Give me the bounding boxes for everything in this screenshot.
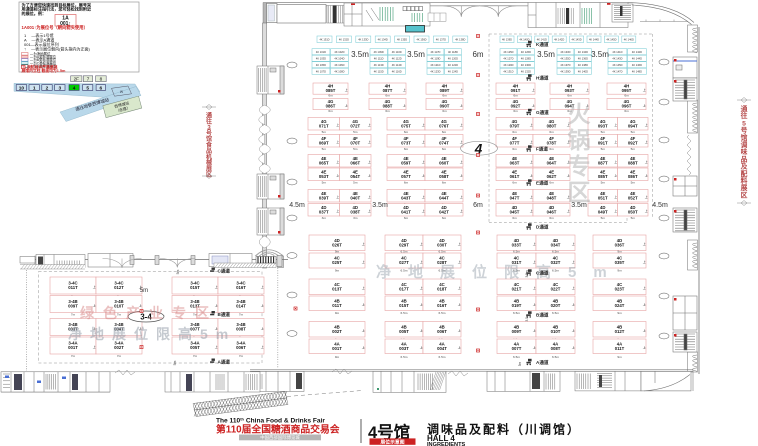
- svg-text:调: 调: [741, 140, 748, 149]
- svg-text:4K 144D: 4K 144D: [632, 56, 642, 60]
- svg-text:002T: 002T: [114, 345, 124, 350]
- svg-text:8: 8: [100, 76, 103, 81]
- svg-text:上: 上: [533, 328, 536, 333]
- svg-text:091T: 091T: [511, 88, 521, 93]
- svg-text:2F: 2F: [74, 76, 80, 81]
- svg-text:上: 上: [336, 139, 339, 144]
- svg-text:7m: 7m: [239, 354, 244, 358]
- svg-text:6m: 6m: [328, 109, 333, 113]
- svg-text:060T: 060T: [439, 160, 449, 165]
- svg-text:上: 上: [460, 139, 463, 144]
- svg-text:上: 上: [614, 139, 617, 144]
- svg-text:4K 132D: 4K 132D: [521, 69, 531, 73]
- svg-text:4K 125D: 4K 125D: [503, 50, 513, 54]
- svg-text:味: 味: [741, 147, 748, 156]
- svg-text:4K 109D: 4K 109D: [374, 50, 384, 54]
- svg-text:007T: 007T: [512, 346, 522, 351]
- svg-text:上: 上: [403, 103, 406, 108]
- svg-text:054T: 054T: [350, 174, 360, 179]
- svg-text:7m: 7m: [239, 313, 244, 317]
- svg-text:036T: 036T: [615, 242, 625, 247]
- svg-text:6m: 6m: [442, 130, 447, 134]
- svg-text:上: 上: [460, 173, 463, 178]
- svg-text:6m: 6m: [385, 94, 390, 98]
- svg-text:B通道: B通道: [218, 311, 231, 318]
- svg-text:3m: 3m: [353, 216, 358, 220]
- svg-text:023T: 023T: [615, 286, 625, 291]
- svg-text:通: 通: [206, 112, 212, 120]
- svg-text:079T: 079T: [510, 123, 520, 128]
- svg-text:4K 110D: 4K 110D: [392, 50, 402, 54]
- svg-text:3: 3: [58, 85, 61, 91]
- svg-text:041T: 041T: [401, 209, 411, 214]
- svg-text:上: 上: [368, 122, 371, 127]
- svg-text:012T: 012T: [615, 329, 625, 334]
- svg-text:001T: 001T: [332, 346, 342, 351]
- svg-text:上: 上: [645, 208, 648, 213]
- svg-text:6: 6: [99, 85, 102, 91]
- svg-text:092T: 092T: [628, 140, 638, 145]
- svg-text:上: 上: [215, 344, 218, 349]
- svg-text:4K 140D: 4K 140D: [519, 37, 529, 41]
- svg-text:上: 上: [362, 345, 365, 350]
- svg-text:5: 5: [86, 85, 89, 91]
- svg-text:上: 上: [460, 103, 463, 108]
- svg-text:C通道: C通道: [536, 270, 549, 277]
- svg-text:5m: 5m: [601, 181, 606, 185]
- svg-text:6m: 6m: [442, 147, 447, 151]
- svg-text:4K 134D: 4K 134D: [378, 37, 388, 41]
- svg-text:上: 上: [368, 208, 371, 213]
- svg-text:4K 143D: 4K 143D: [572, 37, 582, 41]
- svg-text:037T: 037T: [319, 209, 329, 214]
- svg-text:008T: 008T: [236, 327, 246, 332]
- svg-text:092T: 092T: [511, 104, 521, 109]
- svg-text:上: 上: [336, 208, 339, 213]
- svg-text:上: 上: [362, 259, 365, 264]
- svg-text:械: 械: [206, 159, 212, 167]
- svg-text:088T: 088T: [383, 104, 393, 109]
- svg-text:4K 137D: 4K 137D: [436, 37, 446, 41]
- svg-text:9m: 9m: [617, 355, 622, 359]
- svg-text:上: 上: [614, 173, 617, 178]
- svg-text:上: 上: [643, 302, 646, 307]
- svg-text:026T: 026T: [332, 242, 342, 247]
- svg-text:6m: 6m: [404, 181, 409, 185]
- svg-text:上: 上: [458, 302, 461, 307]
- svg-text:009T: 009T: [68, 304, 78, 309]
- svg-text:上: 上: [460, 208, 463, 213]
- svg-text:4K 129D: 4K 129D: [503, 63, 513, 67]
- svg-text:上: 上: [336, 173, 339, 178]
- svg-text:5: 5: [742, 120, 746, 127]
- svg-text:091T: 091T: [598, 140, 608, 145]
- svg-text:085T: 085T: [326, 88, 336, 93]
- svg-text:5m: 5m: [353, 130, 358, 134]
- svg-text:上: 上: [362, 285, 365, 290]
- svg-text:021T: 021T: [512, 286, 522, 291]
- svg-text:072T: 072T: [350, 123, 360, 128]
- svg-text:061T: 061T: [510, 174, 520, 179]
- svg-text:中国西部国际博览城: 中国西部国际博览城: [260, 434, 300, 441]
- svg-text:3.5m: 3.5m: [537, 50, 555, 59]
- svg-text:001T: 001T: [68, 345, 78, 350]
- svg-text:展馆内立柱 截面均为1.5m: 展馆内立柱 截面均为1.5m: [21, 68, 67, 73]
- svg-text:057T: 057T: [401, 174, 411, 179]
- svg-text:上: 上: [645, 122, 648, 127]
- svg-text:4K 139D: 4K 139D: [502, 37, 512, 41]
- svg-text:上: 上: [422, 122, 425, 127]
- svg-text:上: 上: [362, 302, 365, 307]
- svg-text:075T: 075T: [401, 123, 411, 128]
- svg-text:4K 145D: 4K 145D: [606, 37, 616, 41]
- svg-text:上: 上: [458, 328, 461, 333]
- svg-text:020T: 020T: [551, 303, 561, 308]
- svg-text:6.5m: 6.5m: [439, 311, 446, 315]
- svg-text:066T: 066T: [350, 160, 360, 165]
- svg-text:3.5m: 3.5m: [372, 202, 388, 209]
- svg-text:9m: 9m: [617, 311, 622, 315]
- svg-text:070T: 070T: [350, 140, 360, 145]
- svg-text:6m: 6m: [404, 216, 409, 220]
- svg-text:4K 111D: 4K 111D: [374, 56, 384, 60]
- svg-text:上: 上: [614, 194, 617, 199]
- svg-text:003T: 003T: [399, 346, 409, 351]
- svg-text:上: 上: [460, 159, 463, 164]
- svg-text:上: 上: [530, 194, 533, 199]
- svg-text:的展位。例：: 的展位。例：: [22, 10, 47, 16]
- svg-text:4K 135D: 4K 135D: [397, 37, 407, 41]
- svg-text:上: 上: [420, 241, 423, 246]
- svg-text:4K 145D: 4K 145D: [612, 63, 622, 67]
- svg-text:4K 105D: 4K 105D: [316, 63, 326, 67]
- svg-text:上: 上: [460, 87, 463, 92]
- svg-text:4K 140D: 4K 140D: [578, 69, 588, 73]
- svg-text:6m: 6m: [404, 147, 409, 151]
- svg-text:043T: 043T: [401, 195, 411, 200]
- svg-text:6m: 6m: [512, 181, 517, 185]
- svg-text:4K 144D: 4K 144D: [589, 37, 599, 41]
- svg-text:015T: 015T: [190, 285, 200, 290]
- svg-text:上: 上: [422, 208, 425, 213]
- svg-text:095T: 095T: [622, 88, 632, 93]
- svg-text:3.5m: 3.5m: [525, 314, 529, 321]
- svg-text:号: 号: [741, 126, 748, 135]
- svg-text:5m: 5m: [140, 288, 148, 294]
- svg-text:上: 上: [614, 159, 617, 164]
- svg-text:6m: 6m: [328, 94, 333, 98]
- svg-text:5m: 5m: [601, 216, 606, 220]
- svg-text:上: 上: [261, 284, 264, 289]
- svg-text:5m: 5m: [322, 130, 327, 134]
- svg-text:4K 122D: 4K 122D: [448, 63, 458, 67]
- svg-text:005T: 005T: [190, 345, 200, 350]
- svg-text:013T: 013T: [332, 286, 342, 291]
- svg-text:上: 上: [93, 284, 96, 289]
- svg-text:1: 1: [33, 85, 36, 91]
- svg-text:3.5m: 3.5m: [571, 202, 587, 209]
- svg-text:上: 上: [336, 122, 339, 127]
- svg-text:3.5m: 3.5m: [591, 50, 609, 59]
- svg-text:上: 上: [368, 173, 371, 178]
- svg-text:046T: 046T: [547, 209, 557, 214]
- svg-text:9m: 9m: [335, 269, 340, 273]
- svg-text:4K 118D: 4K 118D: [448, 50, 458, 54]
- svg-text:085T: 085T: [598, 174, 608, 179]
- svg-text:7m: 7m: [71, 313, 76, 317]
- svg-text:料: 料: [741, 176, 748, 185]
- svg-text:上: 上: [532, 87, 535, 92]
- svg-text:4K 126D: 4K 126D: [521, 50, 531, 54]
- svg-text:4K 115D: 4K 115D: [374, 69, 384, 73]
- svg-text:6m: 6m: [512, 130, 517, 134]
- svg-text:6m: 6m: [473, 202, 483, 209]
- svg-text:063T: 063T: [510, 160, 520, 165]
- svg-text:071T: 071T: [319, 123, 329, 128]
- svg-text:096T: 096T: [622, 104, 632, 109]
- svg-text:030T: 030T: [437, 242, 447, 247]
- svg-text:4K 116D: 4K 116D: [392, 69, 402, 73]
- svg-text:6.5m: 6.5m: [552, 355, 559, 359]
- svg-text:D通道: D通道: [536, 224, 549, 231]
- svg-text:4K 133D: 4K 133D: [560, 50, 570, 54]
- svg-text:C通道: C通道: [218, 268, 231, 275]
- svg-text:及: 及: [741, 163, 748, 171]
- svg-text:6.5m: 6.5m: [552, 311, 559, 315]
- svg-text:上: 上: [572, 241, 575, 246]
- svg-text:4K 117D: 4K 117D: [430, 50, 440, 54]
- svg-text:4K 141D: 4K 141D: [612, 50, 622, 54]
- svg-text:017T: 017T: [399, 286, 409, 291]
- svg-text:7m: 7m: [193, 354, 198, 358]
- svg-text:4K 143D: 4K 143D: [612, 56, 622, 60]
- svg-text:7m: 7m: [117, 354, 122, 358]
- svg-text:9m: 9m: [335, 311, 340, 315]
- svg-text:093T: 093T: [565, 88, 575, 93]
- svg-text:064T: 064T: [547, 160, 557, 165]
- svg-text:4K 127D: 4K 127D: [503, 56, 513, 60]
- svg-text:6m: 6m: [512, 216, 517, 220]
- svg-text:5m: 5m: [631, 181, 636, 185]
- svg-text:4K 132D: 4K 132D: [339, 37, 349, 41]
- svg-text:4.5m: 4.5m: [289, 202, 305, 209]
- svg-text:4K 128D: 4K 128D: [521, 56, 531, 60]
- svg-text:090T: 090T: [440, 104, 450, 109]
- svg-text:上: 上: [533, 345, 536, 350]
- svg-text:展: 展: [206, 165, 212, 173]
- svg-text:H通道: H通道: [536, 75, 549, 82]
- svg-text:011T: 011T: [615, 346, 625, 351]
- svg-text:4K 120D: 4K 120D: [448, 56, 458, 60]
- svg-text:6m: 6m: [549, 181, 554, 185]
- svg-text:A通道: A通道: [218, 359, 231, 366]
- svg-text:086T: 086T: [326, 104, 336, 109]
- svg-text:034T: 034T: [551, 242, 561, 247]
- svg-text:012T: 012T: [114, 285, 124, 290]
- svg-text:7m: 7m: [71, 354, 76, 358]
- svg-text:011T: 011T: [68, 285, 78, 290]
- svg-text:008T: 008T: [551, 346, 561, 351]
- svg-text:E通道: E通道: [536, 180, 549, 187]
- svg-text:5m: 5m: [601, 130, 606, 134]
- svg-text:4K 141D: 4K 141D: [537, 37, 547, 41]
- svg-text:087T: 087T: [598, 160, 608, 165]
- svg-text:002T: 002T: [332, 329, 342, 334]
- svg-text:上: 上: [572, 345, 575, 350]
- svg-text:059T: 059T: [401, 160, 411, 165]
- svg-text:4K 136D: 4K 136D: [416, 37, 426, 41]
- svg-text:3.5m: 3.5m: [351, 50, 369, 59]
- svg-text:4K 124D: 4K 124D: [448, 69, 458, 73]
- svg-text:往: 往: [741, 111, 748, 120]
- svg-text:上: 上: [420, 345, 423, 350]
- svg-text:净地展位限高5m: 净地展位限高5m: [68, 326, 236, 342]
- svg-text:上: 上: [643, 241, 646, 246]
- svg-text:4K 135D: 4K 135D: [560, 56, 570, 60]
- svg-text:016T: 016T: [236, 285, 246, 290]
- svg-text:5m: 5m: [353, 181, 358, 185]
- svg-text:上: 上: [93, 344, 96, 349]
- svg-text:050T: 050T: [628, 209, 638, 214]
- svg-text:6.5m: 6.5m: [401, 311, 408, 315]
- svg-text:015T: 015T: [399, 303, 409, 308]
- svg-text:089T: 089T: [440, 88, 450, 93]
- svg-text:045T: 045T: [510, 209, 520, 214]
- svg-text:038T: 038T: [350, 209, 360, 214]
- svg-text:019T: 019T: [512, 303, 522, 308]
- svg-text:6m: 6m: [513, 94, 518, 98]
- svg-text:025T: 025T: [332, 260, 342, 265]
- svg-text:上: 上: [643, 87, 646, 92]
- svg-text:4K 133D: 4K 133D: [358, 37, 368, 41]
- svg-text:上: 上: [345, 103, 348, 108]
- svg-text:3m: 3m: [322, 216, 327, 220]
- svg-text:016T: 016T: [437, 303, 447, 308]
- svg-text:K通道: K通道: [536, 41, 549, 48]
- svg-text:4.5m: 4.5m: [652, 202, 668, 209]
- svg-text:4K 102D: 4K 102D: [334, 50, 344, 54]
- svg-text:上: 上: [645, 139, 648, 144]
- svg-text:062T: 062T: [547, 174, 557, 179]
- svg-text:4K 148D: 4K 148D: [632, 69, 642, 73]
- svg-text:6.5m: 6.5m: [513, 355, 520, 359]
- svg-text:上: 上: [533, 241, 536, 246]
- svg-text:024T: 024T: [615, 303, 625, 308]
- svg-text:4K 137D: 4K 137D: [560, 63, 570, 67]
- svg-text:4K 138D: 4K 138D: [578, 63, 588, 67]
- svg-text:馆: 馆: [206, 135, 212, 143]
- svg-text:074T: 074T: [439, 140, 449, 145]
- svg-text:3.5m: 3.5m: [525, 270, 529, 277]
- svg-text:净地展位限高5m: 净地展位限高5m: [376, 263, 624, 281]
- svg-text:上: 上: [403, 87, 406, 92]
- svg-text:上: 上: [643, 328, 646, 333]
- svg-text:上: 上: [458, 285, 461, 290]
- svg-text:7: 7: [87, 76, 90, 81]
- svg-text:6m: 6m: [472, 50, 483, 59]
- svg-text:上: 上: [533, 285, 536, 290]
- svg-text:上: 上: [567, 208, 570, 213]
- svg-text:022T: 022T: [551, 286, 561, 291]
- svg-text:014T: 014T: [236, 304, 246, 309]
- svg-text:4K 121D: 4K 121D: [430, 63, 440, 67]
- svg-text:绿色产业专区: 绿色产业专区: [80, 305, 218, 321]
- svg-text:上: 上: [530, 173, 533, 178]
- svg-text:上: 上: [420, 302, 423, 307]
- svg-text:F通道: F通道: [536, 146, 548, 153]
- svg-text:上: 上: [460, 194, 463, 199]
- svg-text:上: 上: [215, 284, 218, 289]
- svg-text:A通道: A通道: [536, 359, 549, 366]
- svg-text:6m: 6m: [624, 94, 629, 98]
- svg-text:上: 上: [572, 285, 575, 290]
- svg-text:6m: 6m: [549, 130, 554, 134]
- svg-text:配: 配: [741, 169, 748, 178]
- svg-text:4K 134D: 4K 134D: [578, 50, 588, 54]
- svg-text:039T: 039T: [319, 195, 329, 200]
- svg-text:5m: 5m: [518, 361, 522, 366]
- svg-text:馆: 馆: [741, 133, 748, 142]
- svg-text:6m: 6m: [442, 181, 447, 185]
- svg-text:上: 上: [422, 173, 425, 178]
- svg-text:展位示意图: 展位示意图: [381, 439, 405, 446]
- svg-text:080T: 080T: [547, 123, 557, 128]
- svg-text:G通道: G通道: [536, 109, 549, 116]
- svg-text:上: 上: [614, 122, 617, 127]
- svg-text:6m: 6m: [512, 147, 517, 151]
- svg-text:4K 112D: 4K 112D: [392, 56, 402, 60]
- svg-text:火: 火: [568, 101, 591, 127]
- svg-text:6m: 6m: [442, 94, 447, 98]
- svg-text:005T: 005T: [399, 329, 409, 334]
- svg-text:6m: 6m: [513, 109, 518, 113]
- svg-text:4K 147D: 4K 147D: [612, 69, 622, 73]
- svg-text:上: 上: [368, 139, 371, 144]
- svg-text:4K 139D: 4K 139D: [560, 69, 570, 73]
- svg-text:号: 号: [206, 129, 212, 137]
- svg-text:6m: 6m: [567, 94, 572, 98]
- svg-text:往: 往: [206, 117, 212, 125]
- svg-text:4K 101D: 4K 101D: [316, 50, 326, 54]
- svg-text:B通道: B通道: [536, 312, 549, 319]
- svg-text:004T: 004T: [437, 346, 447, 351]
- svg-text:6m: 6m: [385, 109, 390, 113]
- svg-text:4K 123D: 4K 123D: [430, 69, 440, 73]
- svg-text:4K 114D: 4K 114D: [392, 63, 402, 67]
- svg-text:049T: 049T: [598, 209, 608, 214]
- svg-text:088T: 088T: [628, 160, 638, 165]
- svg-text:065T: 065T: [319, 160, 329, 165]
- svg-text:上: 上: [261, 344, 264, 349]
- svg-text:4K 136D: 4K 136D: [578, 56, 588, 60]
- svg-text:5m: 5m: [631, 130, 636, 134]
- svg-text:6m: 6m: [624, 109, 629, 113]
- svg-text:010T: 010T: [551, 329, 561, 334]
- svg-text:009T: 009T: [512, 329, 522, 334]
- svg-text:食: 食: [205, 141, 213, 149]
- svg-text:上: 上: [643, 103, 646, 108]
- svg-text:6m: 6m: [549, 216, 554, 220]
- svg-text:上: 上: [533, 302, 536, 307]
- svg-text:093T: 093T: [598, 123, 608, 128]
- svg-text:上: 上: [530, 139, 533, 144]
- svg-text:087T: 087T: [383, 88, 393, 93]
- svg-text:6.5m: 6.5m: [439, 355, 446, 359]
- svg-text:042T: 042T: [439, 209, 449, 214]
- svg-text:4K 146D: 4K 146D: [632, 63, 642, 67]
- svg-text:4K 108D: 4K 108D: [334, 69, 344, 73]
- svg-text:上: 上: [586, 87, 589, 92]
